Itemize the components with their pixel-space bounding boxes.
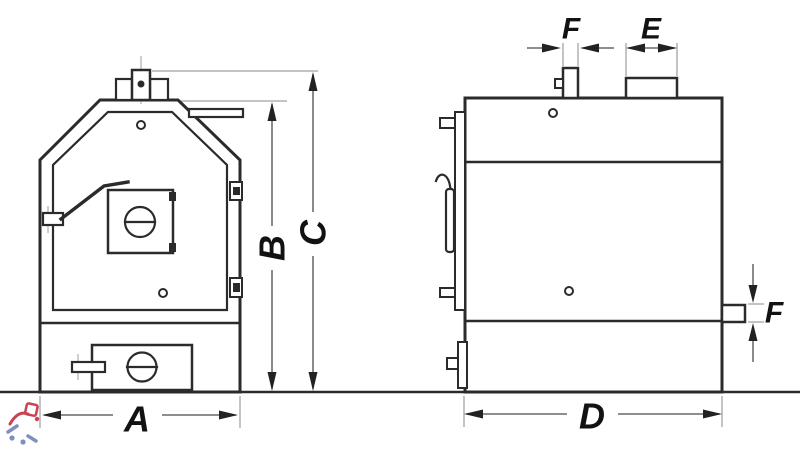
side-return-pipe	[722, 305, 745, 322]
chimney-stub	[116, 56, 168, 104]
hinge-upper-pin	[233, 187, 240, 195]
dimension-label-e: E	[641, 13, 662, 46]
watermark-red-box	[25, 403, 38, 416]
dimension-label-a: A	[123, 399, 150, 440]
front-view	[40, 56, 243, 392]
side-view	[436, 68, 745, 392]
ash-latch-rod	[72, 362, 105, 372]
chimney-left-flange	[116, 79, 132, 100]
arrowhead-right-inward	[542, 44, 561, 53]
watermark-red-dot	[35, 417, 39, 421]
arrowhead-right	[219, 411, 238, 420]
upper-bolt	[137, 121, 145, 129]
dimension-label-f-side: F	[765, 297, 784, 330]
arrowhead-top	[309, 72, 318, 91]
chimney-bolt	[138, 81, 145, 88]
watermark-blue-stroke-1	[8, 426, 17, 432]
side-front-edge	[436, 112, 467, 388]
arrowhead-down	[749, 285, 758, 303]
dimension-f-side: F	[748, 264, 784, 362]
side-body-outline	[465, 98, 722, 392]
door-frame-edge	[455, 112, 465, 310]
watermark-blue-dot-1	[9, 435, 14, 440]
fuel-door-hinge-bottom	[169, 243, 176, 252]
edge-tab-bottom	[440, 288, 455, 297]
arrowhead-left-inward	[580, 44, 599, 53]
door-handle-bar	[446, 189, 454, 252]
side-mid-bolt	[565, 287, 573, 295]
watermark-blue-dot-2	[20, 439, 25, 444]
hinge-lower-pin	[233, 283, 240, 292]
dimension-e: E	[626, 13, 677, 77]
top-pipe-small	[563, 68, 578, 98]
side-upper-bolt	[549, 109, 557, 117]
technical-drawing: A B C D E	[0, 0, 800, 451]
edge-tab-top	[440, 118, 455, 128]
dimension-f-top: F	[527, 13, 614, 67]
dimension-label-c: C	[293, 219, 334, 246]
watermark-blue-stroke-2	[28, 436, 36, 441]
arrowhead-bottom	[309, 372, 318, 391]
arrowhead-left	[464, 410, 483, 419]
arrowhead-left	[42, 411, 61, 420]
dimension-a: A	[40, 396, 240, 440]
watermark-logo	[8, 403, 39, 445]
top-pipe-bolt	[555, 79, 563, 88]
ash-edge-tab	[447, 358, 458, 369]
arrowhead-up	[749, 323, 758, 341]
damper-rod	[189, 109, 243, 117]
ash-edge-plate	[458, 342, 467, 388]
dimension-label-d: D	[579, 396, 605, 437]
fuel-door-hinge-top	[169, 192, 176, 201]
arrowhead-top	[268, 102, 277, 121]
flue-outlet	[626, 78, 677, 98]
arrowhead-right	[703, 410, 722, 419]
arrowhead-bottom	[268, 372, 277, 391]
dimension-label-b: B	[252, 235, 293, 261]
chimney-right-flange	[150, 79, 168, 100]
dimension-d: D	[464, 396, 722, 437]
lower-bolt	[159, 289, 167, 297]
dimension-label-f-top: F	[562, 13, 581, 46]
fuel-door	[108, 190, 176, 253]
